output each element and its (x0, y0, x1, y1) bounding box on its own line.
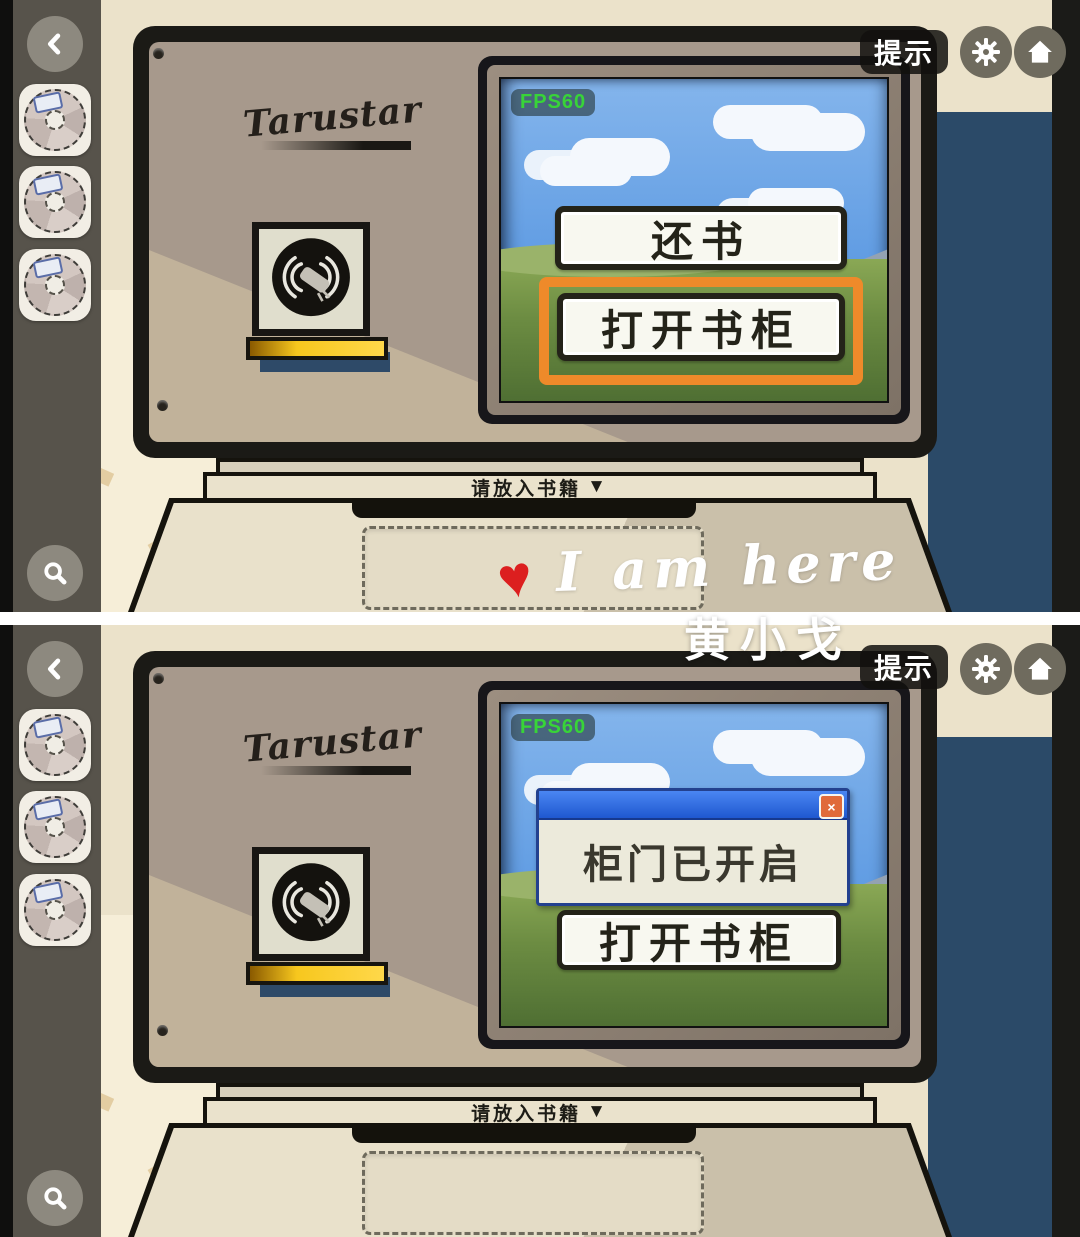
cd-disc-icon (24, 171, 86, 233)
magnifier-icon (40, 1183, 70, 1213)
cloud (540, 156, 632, 186)
screw (157, 1025, 168, 1036)
brand-logo: Tarustar (243, 96, 423, 150)
cd-label (33, 91, 64, 113)
back-button[interactable] (27, 16, 83, 72)
wall-dark-edge (1052, 625, 1080, 1237)
gold-slot-bar (246, 962, 388, 985)
left-black-edge (0, 625, 13, 1237)
down-arrow-icon: ▼ (587, 1101, 609, 1123)
hint-button[interactable]: 提示 (860, 645, 948, 689)
screen-display: FPS60 × 柜门已开启 打开书柜 (499, 702, 889, 1028)
cd-disc-icon (24, 879, 86, 941)
gear-icon (970, 36, 1002, 68)
gear-icon (970, 653, 1002, 685)
inventory-slot-cd[interactable] (19, 249, 91, 321)
panel-divider (0, 612, 1080, 625)
cloud (713, 730, 823, 764)
magnifier-button[interactable] (27, 1170, 83, 1226)
disc-reader[interactable] (252, 847, 370, 961)
brand-logo: Tarustar (243, 721, 423, 775)
home-button[interactable] (1014, 26, 1066, 78)
kiosk-monitor: Tarustar (133, 651, 937, 1083)
cabinet-opened-dialog: × 柜门已开启 (536, 788, 850, 906)
screenshot-panel-bottom: Tarustar (0, 625, 1080, 1237)
vinyl-disc-icon (265, 233, 357, 325)
cd-label (33, 173, 64, 195)
dialog-message: 柜门已开启 (539, 820, 847, 901)
gold-slot-bar (246, 337, 388, 360)
cloud (713, 105, 823, 139)
disc-reader[interactable] (252, 222, 370, 336)
screen-bezel: FPS60 还书 打开书柜 (487, 65, 901, 415)
dialog-titlebar: × (539, 791, 847, 820)
screenshot-panel-top: Tarustar (0, 0, 1080, 612)
screw (153, 673, 164, 684)
down-arrow-icon: ▼ (587, 476, 609, 498)
inventory-slot-cd[interactable] (19, 166, 91, 238)
dialog-close-button[interactable]: × (819, 794, 844, 819)
magnifier-button[interactable] (27, 545, 83, 601)
settings-button[interactable] (960, 26, 1012, 78)
return-book-button[interactable]: 还书 (555, 206, 847, 270)
screw (153, 48, 164, 59)
wall-dark-edge (1052, 0, 1080, 612)
book-slot-recess (352, 1123, 696, 1143)
cd-disc-icon (24, 796, 86, 858)
inventory-slot-cd[interactable] (19, 709, 91, 781)
settings-button[interactable] (960, 643, 1012, 695)
embedded-screen: FPS60 × 柜门已开启 打开书柜 (478, 681, 910, 1049)
inventory-slot-cd[interactable] (19, 84, 91, 156)
kiosk-monitor: Tarustar (133, 26, 937, 458)
left-black-edge (0, 0, 13, 612)
magnifier-icon (40, 558, 70, 588)
cd-disc-icon (24, 254, 86, 316)
vinyl-disc-icon (265, 858, 357, 950)
watermark-signature: 黄小戈 (684, 604, 852, 670)
inventory-sidebar (13, 625, 101, 1237)
back-button[interactable] (27, 641, 83, 697)
inventory-slot-cd[interactable] (19, 791, 91, 863)
cd-label (33, 716, 64, 738)
home-icon (1025, 654, 1055, 684)
insert-books-label: 请放入书籍 (471, 474, 581, 501)
open-bookcase-button[interactable]: 打开书柜 (557, 910, 841, 970)
screen-bezel: FPS60 × 柜门已开启 打开书柜 (487, 690, 901, 1040)
home-button[interactable] (1014, 643, 1066, 695)
cd-label (33, 798, 64, 820)
watermark-text: I am here (555, 528, 902, 604)
fps-counter: FPS60 (511, 714, 595, 741)
home-icon (1025, 37, 1055, 67)
brand-name: Tarustar (242, 88, 425, 146)
inventory-sidebar (13, 0, 101, 612)
fps-counter: FPS60 (511, 89, 595, 116)
screen-display: FPS60 还书 打开书柜 (499, 77, 889, 403)
chevron-left-icon (41, 655, 69, 683)
brand-name: Tarustar (242, 713, 425, 771)
cd-disc-icon (24, 714, 86, 776)
cd-disc-icon (24, 89, 86, 151)
book-slot-recess (352, 498, 696, 518)
insert-books-label: 请放入书籍 (471, 1099, 581, 1126)
cd-label (33, 256, 64, 278)
cd-label (33, 881, 64, 903)
open-bookcase-button[interactable]: 打开书柜 (557, 293, 845, 361)
chevron-left-icon (41, 30, 69, 58)
inventory-slot-cd[interactable] (19, 874, 91, 946)
book-tray (362, 1151, 704, 1235)
hint-button[interactable]: 提示 (860, 30, 948, 74)
screw (157, 400, 168, 411)
embedded-screen: FPS60 还书 打开书柜 (478, 56, 910, 424)
